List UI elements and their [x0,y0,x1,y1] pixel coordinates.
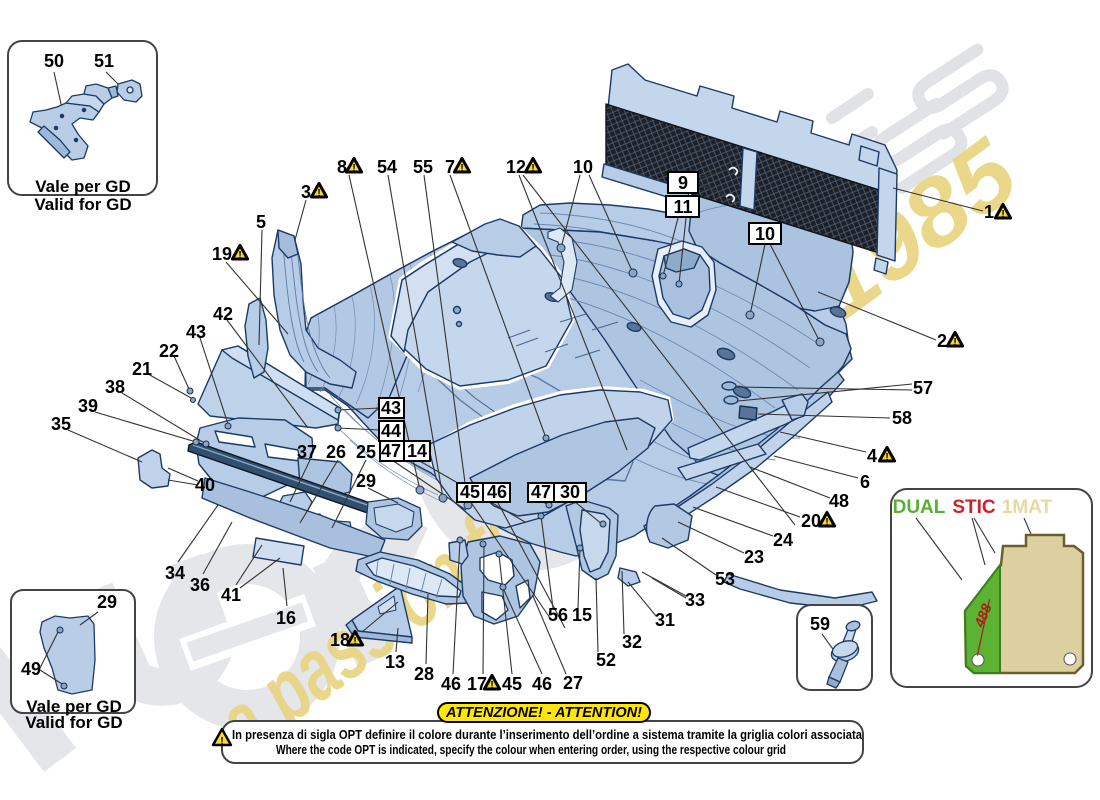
svg-text:9: 9 [678,173,688,193]
svg-text:34: 34 [165,563,185,583]
svg-text:15: 15 [572,605,592,625]
svg-text:59: 59 [810,614,830,634]
svg-text:45: 45 [460,482,480,502]
svg-text:10: 10 [755,224,775,244]
svg-text:21: 21 [132,359,152,379]
svg-text:30: 30 [560,482,580,502]
svg-text:11: 11 [673,197,692,217]
svg-text:43: 43 [381,398,401,418]
svg-text:41: 41 [221,585,241,605]
svg-text:2: 2 [937,331,947,351]
svg-text:58: 58 [892,408,912,428]
svg-text:47: 47 [531,482,551,502]
svg-text:52: 52 [596,650,616,670]
svg-text:DUAL: DUAL [893,497,946,518]
svg-text:6: 6 [860,472,870,492]
svg-text:27: 27 [563,673,583,693]
svg-text:29: 29 [97,592,117,612]
svg-text:4: 4 [867,446,877,466]
svg-text:36: 36 [190,575,210,595]
svg-text:22: 22 [159,341,179,361]
svg-text:56: 56 [548,605,568,625]
svg-text:ATTENZIONE! - ATTENTION!: ATTENZIONE! - ATTENTION! [445,705,642,721]
svg-text:STIC: STIC [952,497,996,518]
svg-text:46: 46 [441,674,461,694]
svg-text:40: 40 [195,475,215,495]
svg-text:31: 31 [655,610,675,630]
svg-text:45: 45 [502,674,522,694]
svg-text:17: 17 [467,674,487,694]
svg-text:!: ! [220,736,223,747]
svg-text:43: 43 [186,322,206,342]
svg-text:39: 39 [78,396,98,416]
svg-text:Vale per GD: Vale per GD [35,177,130,196]
svg-text:In presenza di sigla OPT defin: In presenza di sigla OPT definire il col… [232,727,863,742]
svg-text:20: 20 [801,511,821,531]
svg-text:46: 46 [487,482,507,502]
svg-text:35: 35 [51,414,71,434]
svg-text:8: 8 [337,157,347,177]
svg-text:48: 48 [829,491,849,511]
svg-text:16: 16 [276,608,296,628]
svg-text:14: 14 [407,441,427,461]
svg-text:47: 47 [381,441,401,461]
svg-text:19: 19 [212,244,232,264]
svg-text:Valid for GD: Valid for GD [25,713,122,732]
svg-text:51: 51 [94,51,114,71]
svg-text:37: 37 [297,442,317,462]
svg-text:54: 54 [377,157,397,177]
svg-text:44: 44 [381,421,401,441]
svg-text:7: 7 [445,157,455,177]
svg-text:26: 26 [326,442,346,462]
svg-text:24: 24 [773,530,793,550]
svg-text:1MAT: 1MAT [1002,497,1053,518]
svg-text:Where the code OPT is indicate: Where the code OPT is indicated, specify… [276,742,786,757]
svg-text:29: 29 [356,471,376,491]
svg-text:50: 50 [44,51,64,71]
svg-text:13: 13 [385,652,405,672]
svg-text:12: 12 [506,157,526,177]
svg-text:Valid for GD: Valid for GD [34,195,131,214]
svg-text:55: 55 [413,157,433,177]
svg-text:33: 33 [685,590,705,610]
svg-text:1: 1 [984,202,994,222]
svg-text:10: 10 [573,157,593,177]
svg-text:18: 18 [330,630,350,650]
svg-text:46: 46 [532,674,552,694]
svg-text:57: 57 [913,378,933,398]
svg-text:53: 53 [715,569,735,589]
svg-text:25: 25 [356,442,376,462]
svg-text:23: 23 [744,547,764,567]
svg-text:38: 38 [105,377,125,397]
svg-text:5: 5 [256,212,266,232]
svg-text:42: 42 [213,304,233,324]
svg-text:49: 49 [21,659,41,679]
svg-text:32: 32 [622,632,642,652]
svg-text:28: 28 [414,664,434,684]
svg-text:3: 3 [301,182,311,202]
